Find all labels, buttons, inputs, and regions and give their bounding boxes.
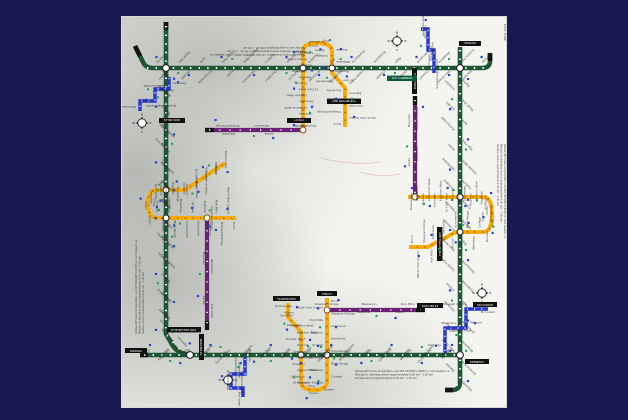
station-label: Lawrence East (143, 84, 166, 88)
station-label: Bay (329, 57, 336, 64)
station-label: York Mills (309, 318, 323, 322)
station-label: Summerhill (316, 79, 333, 83)
station-label: Bayview (202, 252, 206, 265)
station-label: Keele (447, 143, 456, 152)
accessible-station-square (322, 66, 324, 68)
station-label: Union (309, 391, 318, 395)
compass-letter: N (227, 369, 229, 373)
station-label: Leslie (407, 158, 411, 167)
station-label: Osgoode (479, 191, 483, 204)
accessible-station-square (220, 56, 222, 58)
parking-square (199, 273, 201, 275)
parking-square (465, 149, 467, 151)
accessible-station-square (415, 56, 417, 58)
parking-square (169, 360, 171, 362)
station-label: Downsview (409, 192, 413, 210)
station-label: Wellesley (336, 60, 350, 64)
svg-text:Monday to Saturday service app: Monday to Saturday service approximately… (500, 144, 504, 222)
station-label: Wellesley (168, 198, 172, 212)
accessible-station-square (272, 137, 274, 139)
svg-text:KENNEDY: KENNEDY (470, 360, 484, 364)
station-label: Bloor-Yonge (331, 362, 348, 366)
svg-text:KIPLING: KIPLING (130, 349, 142, 353)
parking-square (493, 226, 495, 228)
accessible-station-square (482, 216, 484, 218)
station-label: Bessarion (415, 146, 419, 161)
parking-square (295, 82, 297, 84)
station-label: Rosedale (309, 356, 323, 360)
parking-square (420, 45, 422, 47)
station-label: Runnymede (197, 69, 213, 85)
accessible-station-square (173, 78, 175, 80)
parking-square (147, 88, 149, 90)
parking-square (329, 39, 331, 41)
accessible-station-square (432, 58, 434, 60)
accessible-station-square (429, 205, 431, 207)
accessible-station-square (353, 116, 355, 118)
terminal-box-kennedy-bottom: KENNEDY (465, 359, 489, 364)
station-label: Pape (394, 56, 402, 64)
accessible-station-square (227, 171, 229, 173)
parking-square (317, 380, 319, 382)
station-label: Lawrence (431, 225, 435, 240)
svg-text:DON MILLS: DON MILLS (164, 118, 181, 122)
station-label: Midland (430, 42, 434, 54)
station-label: Lawrence West (427, 177, 431, 201)
station-label: Downsview (275, 304, 293, 308)
accessible-station-square (202, 166, 204, 168)
station-label: Leslie (396, 310, 405, 314)
parking-square (333, 358, 335, 360)
svg-text:Sunday service approximately 9: Sunday service approximately 9:00 am - 1… (243, 46, 305, 50)
parking-square (286, 72, 288, 74)
accessible-station-square (197, 191, 199, 193)
parking-square (351, 98, 353, 100)
station-label: Spadina (457, 193, 461, 205)
station-label: Museum (299, 63, 312, 67)
compass-letter: S (141, 130, 143, 134)
station-label: Union (485, 206, 489, 215)
compass-letter: E (149, 121, 151, 125)
accessible-station-square (155, 106, 157, 108)
accessible-station-square (300, 362, 302, 364)
parking-square (376, 315, 378, 317)
accessible-station-square (179, 362, 181, 364)
accessible-station-square (155, 56, 157, 58)
station-label: Davisville (197, 221, 201, 236)
station-label: Kennedy (428, 343, 441, 347)
station-label: North York Centre (349, 116, 376, 120)
paper-scratch-marks (321, 158, 401, 176)
accessible-station-square (208, 225, 210, 227)
accessible-station-square (330, 344, 332, 346)
accessible-station-square (383, 74, 385, 76)
accessible-station-square (173, 301, 175, 303)
station-label: Bessarion (362, 302, 377, 306)
station-label: Glencairn (287, 323, 301, 327)
parking-square (421, 346, 423, 348)
parking-square (326, 77, 328, 79)
accessible-station-square (306, 397, 308, 399)
accessible-station-square (311, 106, 313, 108)
station-label: Downsview (224, 151, 228, 169)
station-label: Glencairn (204, 167, 208, 181)
accessible-station-square (467, 259, 469, 261)
station-label: College (317, 54, 328, 58)
station-label: Lansdowne (241, 69, 256, 84)
parking-square (462, 224, 464, 226)
station-label: Lawrence (331, 324, 346, 328)
accessible-station-square (404, 165, 406, 167)
station-label: St Clair West (286, 337, 306, 341)
station-label: Don Mills (415, 186, 419, 200)
station-label: Bloor-Yonge (173, 221, 177, 238)
accessible-station-square (226, 208, 228, 210)
station-label: Summerhill (331, 349, 348, 353)
accessible-station-square (319, 48, 321, 50)
station-label: Ellesmere (159, 88, 174, 92)
station-label: Castle Frank (440, 256, 456, 272)
accessible-station-square (467, 138, 469, 140)
station-label: Dundas (485, 230, 489, 242)
station-label: Scarborough Centre (234, 356, 238, 386)
parking-square (191, 193, 193, 195)
station-label: College (478, 217, 482, 228)
station-label: Summerhill (454, 211, 458, 228)
station-labels: KiplingIslingtonRoyal YorkOld MillJaneRu… (122, 16, 496, 406)
accessible-station-square (293, 51, 295, 53)
station-label: Eglinton (349, 92, 361, 96)
station-label: Bayview (358, 310, 371, 314)
accessible-station-square (411, 187, 413, 189)
station-label: Eglinton West (286, 94, 307, 98)
svg-text:DOWNSVIEW: DOWNSVIEW (277, 297, 295, 301)
station-label: Eglinton (311, 330, 323, 334)
compass-letter: W (218, 378, 221, 382)
accessible-station-square (253, 74, 255, 76)
station-label: St Patrick (291, 374, 305, 378)
parking-square (371, 360, 373, 362)
accessible-station-square (425, 19, 427, 21)
accessible-station-square (149, 344, 151, 346)
transit-map-collage: FINCH DON MILLS DOWNSVIEW FINCH DON MILL… (121, 16, 507, 408)
station-label: St Andrew (293, 381, 309, 385)
station-label: College (161, 220, 165, 231)
accessible-station-square (253, 361, 255, 363)
accessible-station-square (240, 362, 242, 364)
compass-letter: W (387, 39, 390, 43)
accessible-station-square (285, 56, 287, 58)
svg-text:Sunday service approximately 9: Sunday service approximately 9:00 am - 1… (355, 376, 417, 380)
station-label: Finch (410, 235, 414, 243)
parking-square (340, 58, 342, 60)
station-label: St Clair West (298, 88, 318, 92)
station-label: Wilson (297, 118, 307, 122)
station-label: Bayview (407, 114, 411, 127)
compass-letter: E (489, 291, 491, 295)
parking-square (208, 164, 210, 166)
accessible-station-square (455, 241, 457, 243)
accessible-station-square (337, 299, 339, 301)
station-label: Finch (232, 222, 236, 230)
fine-print-bottom: Subway/RT hours of operation: call 416 3… (355, 369, 450, 380)
station-label: College (331, 374, 342, 378)
accessible-station-square (350, 56, 352, 58)
station-label: McCowan (427, 54, 431, 68)
station-label: McCowan (122, 105, 136, 109)
parking-square (309, 112, 311, 114)
station-label: Kennedy (173, 81, 186, 85)
accessible-station-square (464, 205, 466, 207)
station-label: Lawrence West (283, 106, 307, 110)
station-label: Bayview (222, 132, 235, 136)
station-label: Sheppard-Yonge (314, 302, 338, 306)
svg-text:Subway/RT hours of operation:: Subway/RT hours of operation: call 416 3… (503, 144, 507, 239)
station-label: Glencairn (299, 100, 313, 104)
accessible-station-square (209, 344, 211, 346)
parking-square (394, 72, 396, 74)
station-label: Eglinton (203, 201, 207, 213)
parking-square (171, 329, 173, 331)
station-label: Spadina (299, 76, 311, 80)
accessible-station-square (156, 206, 158, 208)
parking-square (309, 51, 311, 53)
accessible-station-square (481, 56, 483, 58)
station-label: Sheppard-Yonge (331, 312, 355, 316)
station-label: Coxwell (418, 69, 429, 80)
compass-letter: N (141, 112, 143, 116)
station-label: Keele (226, 69, 235, 78)
station-label: McCowan (481, 310, 495, 314)
station-label: Woodbine (437, 51, 450, 64)
accessible-station-square (145, 99, 147, 101)
station-label: Yorkdale (214, 162, 218, 175)
svg-text:Subway/RT hours of operation:: Subway/RT hours of operation: call 416 3… (134, 239, 138, 334)
accessible-station-square (189, 342, 191, 344)
station-label: Wellesley (472, 236, 476, 250)
station-label: Scarborough Centre (436, 302, 466, 306)
station-label: Glencairn (433, 193, 437, 207)
station-label: Finch (333, 122, 341, 126)
station-label: Don Mills (401, 302, 415, 306)
svg-text:FINCH: FINCH (322, 292, 331, 296)
accessible-station-square (421, 362, 423, 364)
accessible-station-square (177, 81, 179, 83)
station-label: Leslie (202, 296, 206, 305)
parking-square (451, 199, 453, 201)
accessible-station-square (447, 187, 449, 189)
line-sheppard (205, 96, 425, 330)
station-label: St Clair West (195, 168, 199, 188)
station-label: King (323, 39, 330, 43)
parking-square (270, 360, 272, 362)
accessible-station-square (435, 345, 437, 347)
accessible-station-square (449, 229, 451, 231)
accessible-station-square (318, 74, 320, 76)
accessible-station-square (467, 78, 469, 80)
svg-text:Subway/RT hours of operation:: Subway/RT hours of operation: call 416 3… (355, 369, 450, 373)
accessible-station-square (448, 74, 450, 76)
compass-rose: N E S W (132, 112, 151, 134)
station-label: Lawrence (326, 98, 341, 102)
station-label: Bloor-Yonge (311, 66, 328, 70)
accessible-station-square (394, 317, 396, 319)
station-label: Queen (324, 387, 334, 391)
svg-text:Sunday service approximately 9: Sunday service approximately 9:00 am - 1… (496, 144, 500, 206)
station-label: Runnymede (440, 116, 456, 132)
compass-letter: E (404, 39, 406, 43)
terminal-box-kipling-top: KIPLING (459, 41, 481, 46)
accessible-station-square (155, 161, 157, 163)
station-label: St Clair (342, 79, 354, 83)
terminal-box-finch-bottom: FINCH (317, 291, 337, 296)
accessible-station-square (311, 69, 313, 71)
parking-square (453, 189, 455, 191)
station-label: Bessarion (254, 124, 269, 128)
parking-square (220, 346, 222, 348)
accessible-station-square (188, 74, 190, 76)
parking-square (171, 236, 173, 238)
parking-square (158, 209, 160, 211)
station-label: Bloor-Yonge (466, 211, 470, 228)
station-label: Dundas West (460, 158, 477, 175)
station-label: Rosedale (460, 236, 464, 250)
station-label: Midland (226, 376, 230, 388)
accessible-station-square (173, 189, 175, 191)
station-label: Bessarion (210, 259, 214, 274)
accessible-station-square (155, 273, 157, 275)
station-label: Museum (292, 362, 305, 366)
station-label: Ellesmere (442, 321, 457, 325)
station-label: North York Centre (226, 187, 230, 214)
station-label: Dundas West (154, 137, 171, 154)
station-label: Don Mills (210, 304, 214, 318)
accessible-station-square (317, 307, 319, 309)
accessible-station-square (317, 345, 319, 347)
station-label: Scarborough Centre (435, 59, 439, 89)
fine-print-right: Subway/RT hours of operation: call 416 3… (496, 144, 507, 239)
station-label: Leslie (265, 132, 274, 136)
compass-rose: N E S W (472, 282, 491, 304)
accessible-station-square (492, 232, 494, 234)
station-label: Davisville (327, 89, 342, 93)
accessible-station-square (173, 245, 175, 247)
accessible-station-square (173, 224, 175, 226)
svg-text:KIPLING: KIPLING (463, 41, 475, 45)
parking-square (157, 282, 159, 284)
compass-letter: S (481, 300, 483, 304)
station-label: Sheppard-Yonge (422, 219, 426, 243)
accessible-station-square (293, 88, 295, 90)
accessible-station-square (155, 329, 157, 331)
compass-rose: N E S W (387, 30, 406, 52)
accessible-station-square (335, 98, 337, 100)
station-label: St George (292, 69, 307, 73)
station-label: Islington (444, 79, 456, 91)
station-label: St Andrew (154, 184, 158, 200)
station-label: Scarborough Centre (146, 104, 176, 108)
accessible-station-square (309, 376, 311, 378)
accessible-station-square (468, 222, 470, 224)
svg-text:McCOWAN: McCOWAN (477, 303, 493, 307)
station-label: York Mills (429, 249, 433, 263)
terminal-box-downsview-bottom: DOWNSVIEW (273, 296, 300, 301)
station-label: St Andrew (308, 40, 324, 44)
station-label: North York Centre (416, 251, 420, 278)
accessible-station-square (155, 217, 157, 219)
station-label: Museum (171, 182, 175, 195)
screenshot-canvas: FINCH DON MILLS DOWNSVIEW FINCH DON MILL… (0, 0, 628, 420)
station-label: Davisville (331, 337, 346, 341)
district-label: EAST YORK (503, 24, 507, 42)
parking-square (293, 376, 295, 378)
station-label: Rosedale (335, 70, 349, 74)
accessible-station-square (467, 199, 469, 201)
station-label: Broadview (460, 279, 474, 293)
fine-print-left: Subway/RT hours of operation: call 416 3… (134, 239, 145, 334)
accessible-station-square (418, 255, 420, 257)
accessible-station-square (140, 198, 142, 200)
accessible-station-square (335, 364, 337, 366)
accessible-station-square (173, 133, 175, 135)
parking-square (406, 146, 408, 148)
station-label: Rosedale (179, 199, 183, 213)
parking-square (158, 184, 160, 186)
parking-square (448, 58, 450, 60)
station-label: North York Centre (296, 305, 323, 309)
parking-square (455, 334, 457, 336)
station-label: Royal York (461, 98, 475, 112)
station-label: Sherbourne (351, 49, 366, 64)
station-label: Lawrence East (449, 328, 472, 332)
accessible-station-square (191, 207, 193, 209)
accessible-station-square (176, 180, 178, 182)
compass-letter: S (396, 48, 398, 52)
station-label: Spadina (183, 182, 187, 194)
parking-square (320, 346, 322, 348)
svg-text:Monday to Saturday service app: Monday to Saturday service approximately… (137, 256, 141, 334)
station-label: Kennedy (461, 380, 473, 392)
station-label: Sheppard-Yonge (220, 222, 224, 246)
station-label: Union (309, 44, 318, 48)
station-label: McCowan (237, 392, 241, 406)
svg-text:Sunday service approximately 9: Sunday service approximately 9:00 am - 1… (141, 272, 145, 334)
accessible-station-square (270, 344, 272, 346)
parking-square (451, 98, 453, 100)
accessible-station-square (197, 295, 199, 297)
station-label: Sheppard-Yonge (215, 124, 239, 128)
station-label: St George (462, 186, 466, 201)
accessible-station-square (317, 382, 319, 384)
station-label: Lawrence East (421, 16, 425, 36)
compass-letter: N (481, 282, 483, 286)
station-label: Eglinton (440, 244, 444, 256)
parking-square (451, 300, 453, 302)
station-label: York Mills (215, 200, 219, 214)
station-label: St Patrick (159, 181, 163, 195)
parking-square (253, 135, 255, 137)
station-label: St Clair (450, 237, 454, 249)
station-label: Sheppard-Yonge (317, 110, 341, 114)
terminal-box-mccowan-bottom: McCOWAN (473, 302, 497, 307)
accessible-station-square (346, 75, 348, 77)
parking-square (157, 96, 159, 98)
accessible-station-square (286, 329, 288, 331)
parking-square (438, 248, 440, 250)
parking-square (465, 350, 467, 352)
station-label: Sheppard-Yonge (415, 107, 419, 131)
accessible-station-square (451, 344, 453, 346)
